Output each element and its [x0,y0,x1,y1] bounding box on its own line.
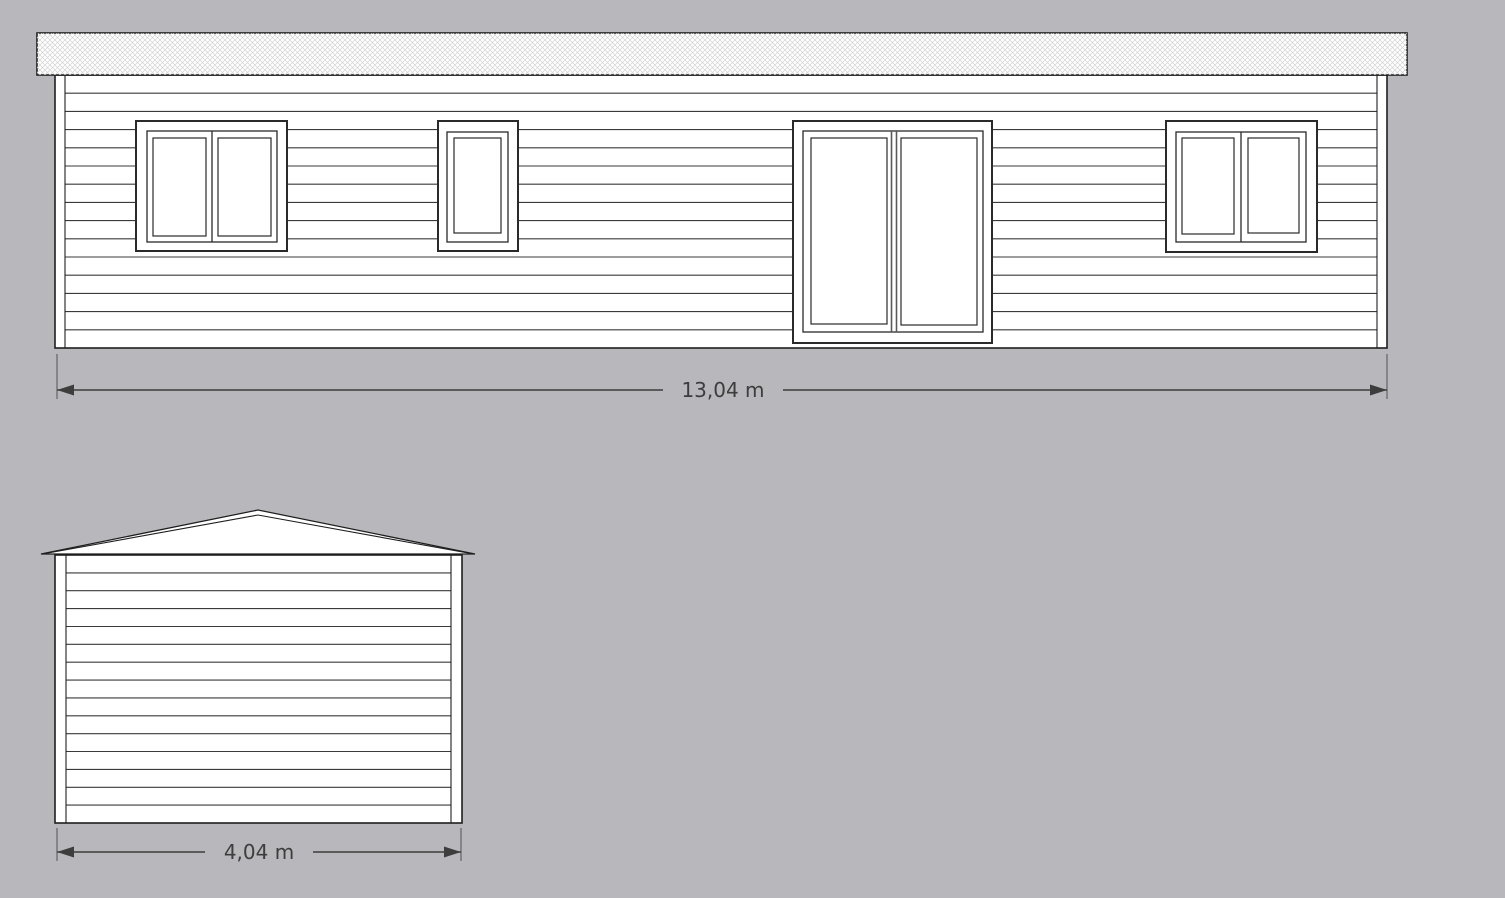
elevation-drawing: 13,04 m [0,0,1505,898]
dimension-arrow-right [444,847,461,858]
double-door [793,121,992,343]
dimension-arrow-left [57,385,74,396]
front-fascia-board [37,33,1407,75]
front-elevation: 13,04 m [37,33,1407,402]
dimension-arrow-left [57,847,74,858]
dimension-arrow-right [1370,385,1387,396]
double-window-left [136,121,287,251]
side-width-dimension-label: 4,04 m [224,840,294,864]
side-width-dimension: 4,04 m [57,828,461,864]
drawing-canvas: 13,04 m [0,0,1505,898]
front-width-dimension-label: 13,04 m [681,378,764,402]
single-window [438,121,518,251]
gable-roof [41,510,475,554]
double-window-right [1166,121,1317,252]
side-wall [55,555,462,823]
side-elevation: 4,04 m [41,510,475,864]
front-width-dimension: 13,04 m [57,354,1387,402]
